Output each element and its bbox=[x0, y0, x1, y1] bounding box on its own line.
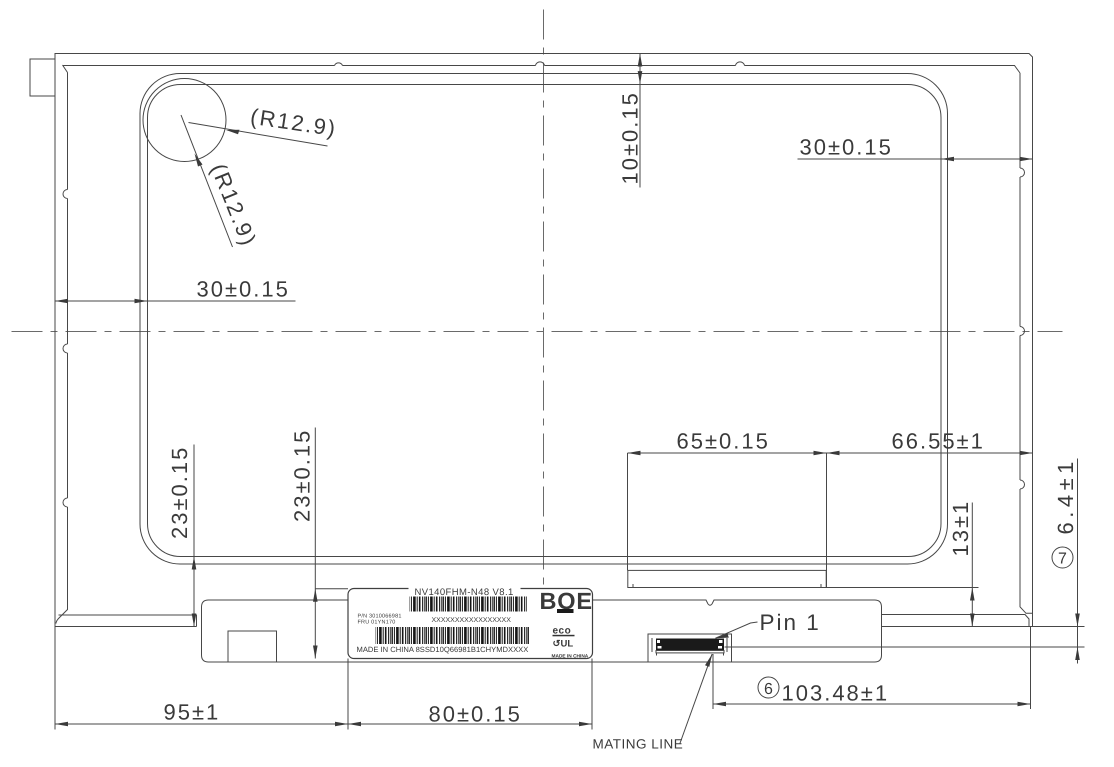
svg-text:Pin 1: Pin 1 bbox=[760, 610, 821, 635]
svg-text:NV140FHM-N48 V8.1: NV140FHM-N48 V8.1 bbox=[415, 587, 514, 598]
svg-text:XXXXXXXXXXXXXXXXX: XXXXXXXXXXXXXXXXX bbox=[432, 617, 512, 624]
svg-text:(R12.9): (R12.9) bbox=[206, 160, 262, 250]
svg-text:13±1: 13±1 bbox=[948, 500, 973, 557]
svg-text:FRU 01YN170: FRU 01YN170 bbox=[358, 620, 396, 626]
svg-text:MADE IN CHINA 8SSD10Q66981B: MADE IN CHINA 8SSD10Q66981B1CHYMDXXXX bbox=[357, 645, 529, 654]
svg-text:66.55±1: 66.55±1 bbox=[892, 429, 985, 454]
svg-text:10±0.15: 10±0.15 bbox=[618, 91, 643, 184]
svg-text:23±0.15: 23±0.15 bbox=[290, 429, 315, 522]
svg-text:6: 6 bbox=[764, 681, 773, 698]
svg-text:6.4±1: 6.4±1 bbox=[1053, 457, 1078, 534]
svg-text:23±0.15: 23±0.15 bbox=[167, 446, 192, 539]
svg-text:(R12.9): (R12.9) bbox=[249, 104, 339, 142]
svg-text:30±0.15: 30±0.15 bbox=[800, 135, 893, 160]
svg-text:95±1: 95±1 bbox=[164, 700, 221, 725]
svg-text:80±0.15: 80±0.15 bbox=[429, 702, 522, 727]
svg-text:30±0.15: 30±0.15 bbox=[197, 277, 290, 302]
svg-text:65±0.15: 65±0.15 bbox=[677, 429, 770, 454]
svg-text:MADE IN CHINA: MADE IN CHINA bbox=[552, 654, 589, 660]
svg-text:103.48±1: 103.48±1 bbox=[782, 681, 890, 706]
svg-text:MATING LINE: MATING LINE bbox=[593, 737, 684, 752]
svg-text:↺UL: ↺UL bbox=[553, 639, 574, 650]
svg-text:7: 7 bbox=[1058, 551, 1067, 568]
